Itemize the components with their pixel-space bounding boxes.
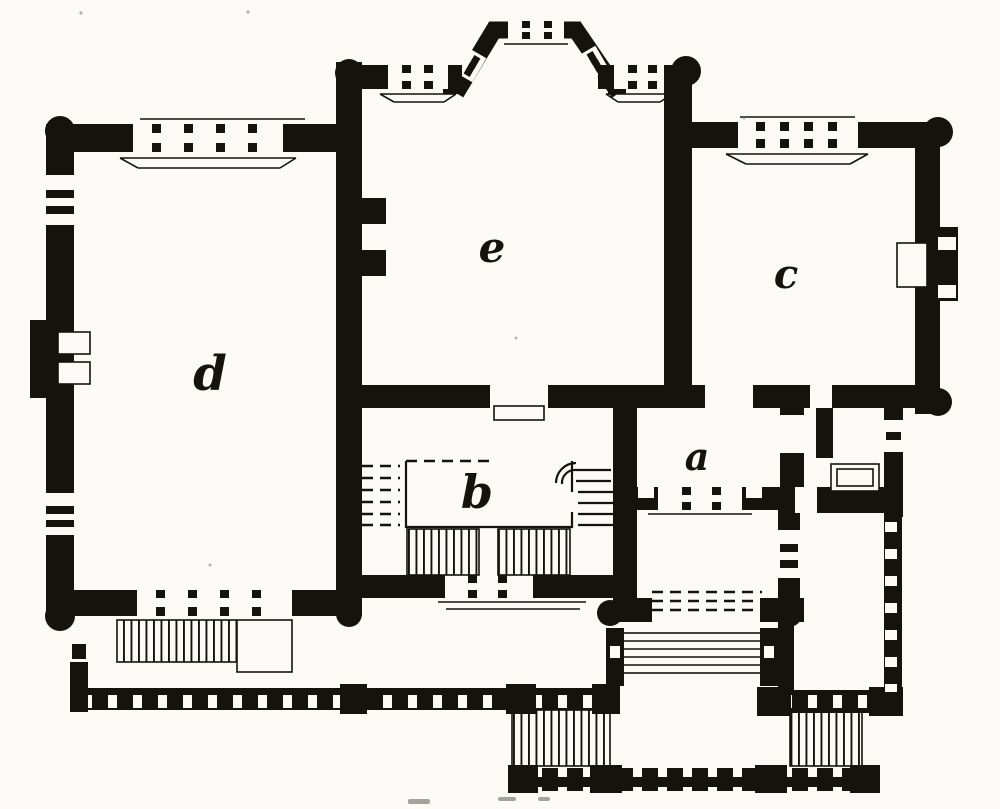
- engraving-page: d e c a b: [0, 0, 1000, 809]
- pilaster-e-1: [362, 198, 386, 224]
- wall-wc-stub: [816, 405, 833, 458]
- room-label-a: a: [685, 434, 710, 479]
- stair-steps-left: [407, 529, 479, 575]
- room-label-c: c: [774, 251, 798, 298]
- balustrade-veranda-side: [884, 517, 902, 692]
- wall-d-e-shared: [336, 62, 362, 614]
- porch-steps-left: [512, 710, 610, 766]
- wc-fixture: [831, 464, 879, 491]
- pilaster-e-2: [362, 250, 386, 276]
- stair-steps-right: [498, 529, 570, 575]
- porch-steps-right: [790, 710, 862, 766]
- room-label-d: d: [193, 346, 227, 402]
- balustrade-lower: [508, 768, 880, 791]
- floor-plan-drawing: d e c a b: [0, 0, 1000, 809]
- room-label-b: b: [461, 465, 493, 519]
- room-label-e: e: [479, 223, 506, 272]
- wall-e-c-shared: [664, 65, 692, 408]
- wall-main-spine: [336, 385, 940, 408]
